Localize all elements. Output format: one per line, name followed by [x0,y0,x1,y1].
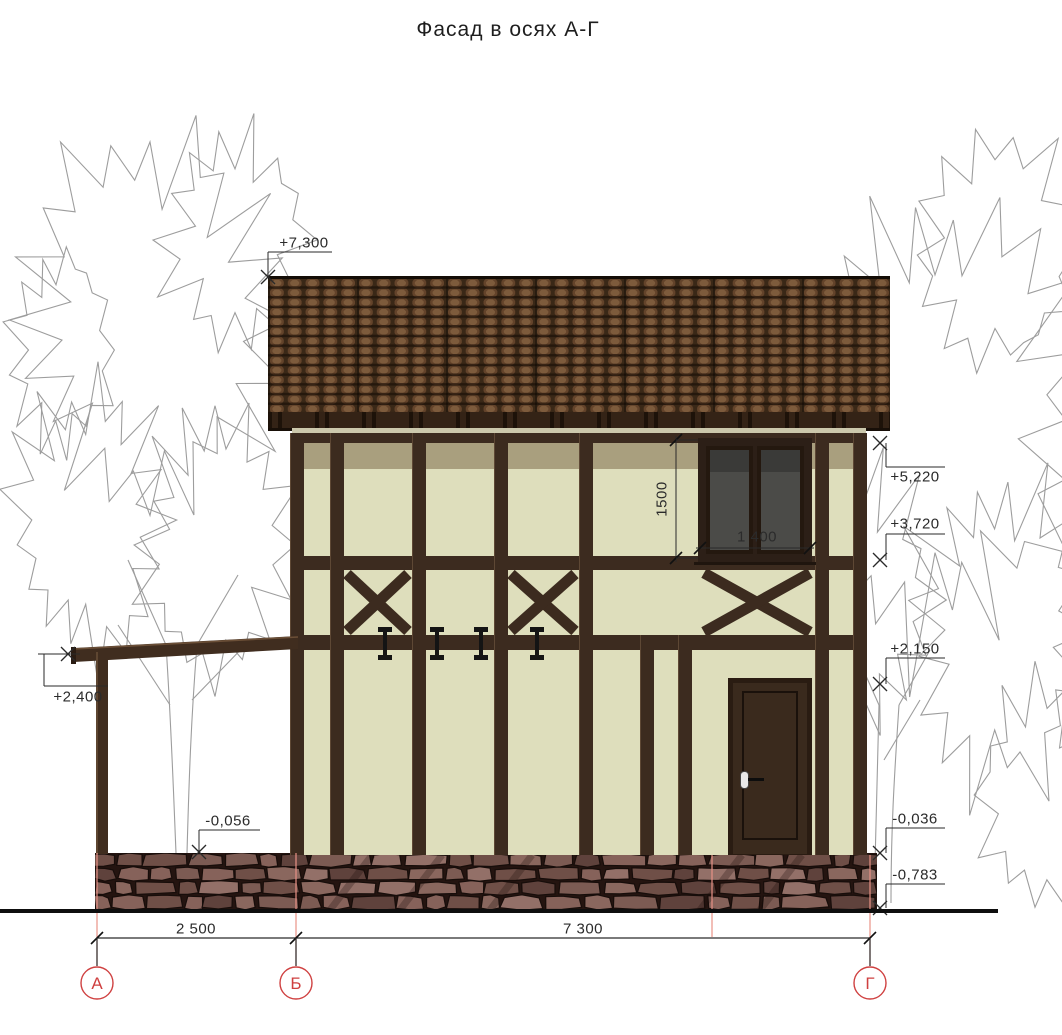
timber-post [579,433,593,855]
axis-bubble-a: А [91,974,102,994]
axis-bubble-g: Г [865,974,874,994]
elevation-label-sill: +3,720 [890,516,939,533]
elevation-label-ground: -0,783 [892,867,938,884]
timber-post [815,433,829,855]
window-sill [694,562,816,565]
drawing-title: Фасад в осях А-Г [416,18,599,42]
elevation-label-porch-floor: -0,056 [205,813,251,830]
facade-drawing: Фасад в осях А-Г +7,300 +5,220 +3,720 +2… [0,0,1062,1035]
elevation-label-plinth-top: -0,036 [892,811,938,828]
anchor-bolt [430,627,444,660]
dim-window-width: 1 400 [737,529,777,546]
timber-post [330,433,344,855]
dim-span-b-g: 7 300 [563,921,603,938]
porch-post [96,652,108,854]
timber-post [290,433,304,855]
elevation-label-roof-top: +7,300 [279,235,328,252]
dim-span-a-b: 2 500 [176,921,216,938]
axis-bubble-b: Б [290,974,301,994]
entrance-door [728,678,812,855]
timber-post [494,433,508,855]
anchor-bolt [378,627,392,660]
roof-tiles [268,276,890,415]
timber-post [853,433,867,855]
timber-post [640,635,654,855]
elevation-label-eaves: +5,220 [890,469,939,486]
mid-beam-floor [290,635,866,650]
door-panel [742,691,798,840]
timber-post [678,635,692,855]
door-handle-lever [748,778,764,781]
anchor-bolt [474,627,488,660]
door-leaf [733,683,807,854]
dim-window-height: 1500 [654,481,671,516]
elevation-label-door-top: +2,150 [890,641,939,658]
elevation-label-porch-roof: +2,400 [53,689,102,706]
anchor-bolt [530,627,544,660]
facade-wall [290,433,866,855]
timber-post [412,433,426,855]
